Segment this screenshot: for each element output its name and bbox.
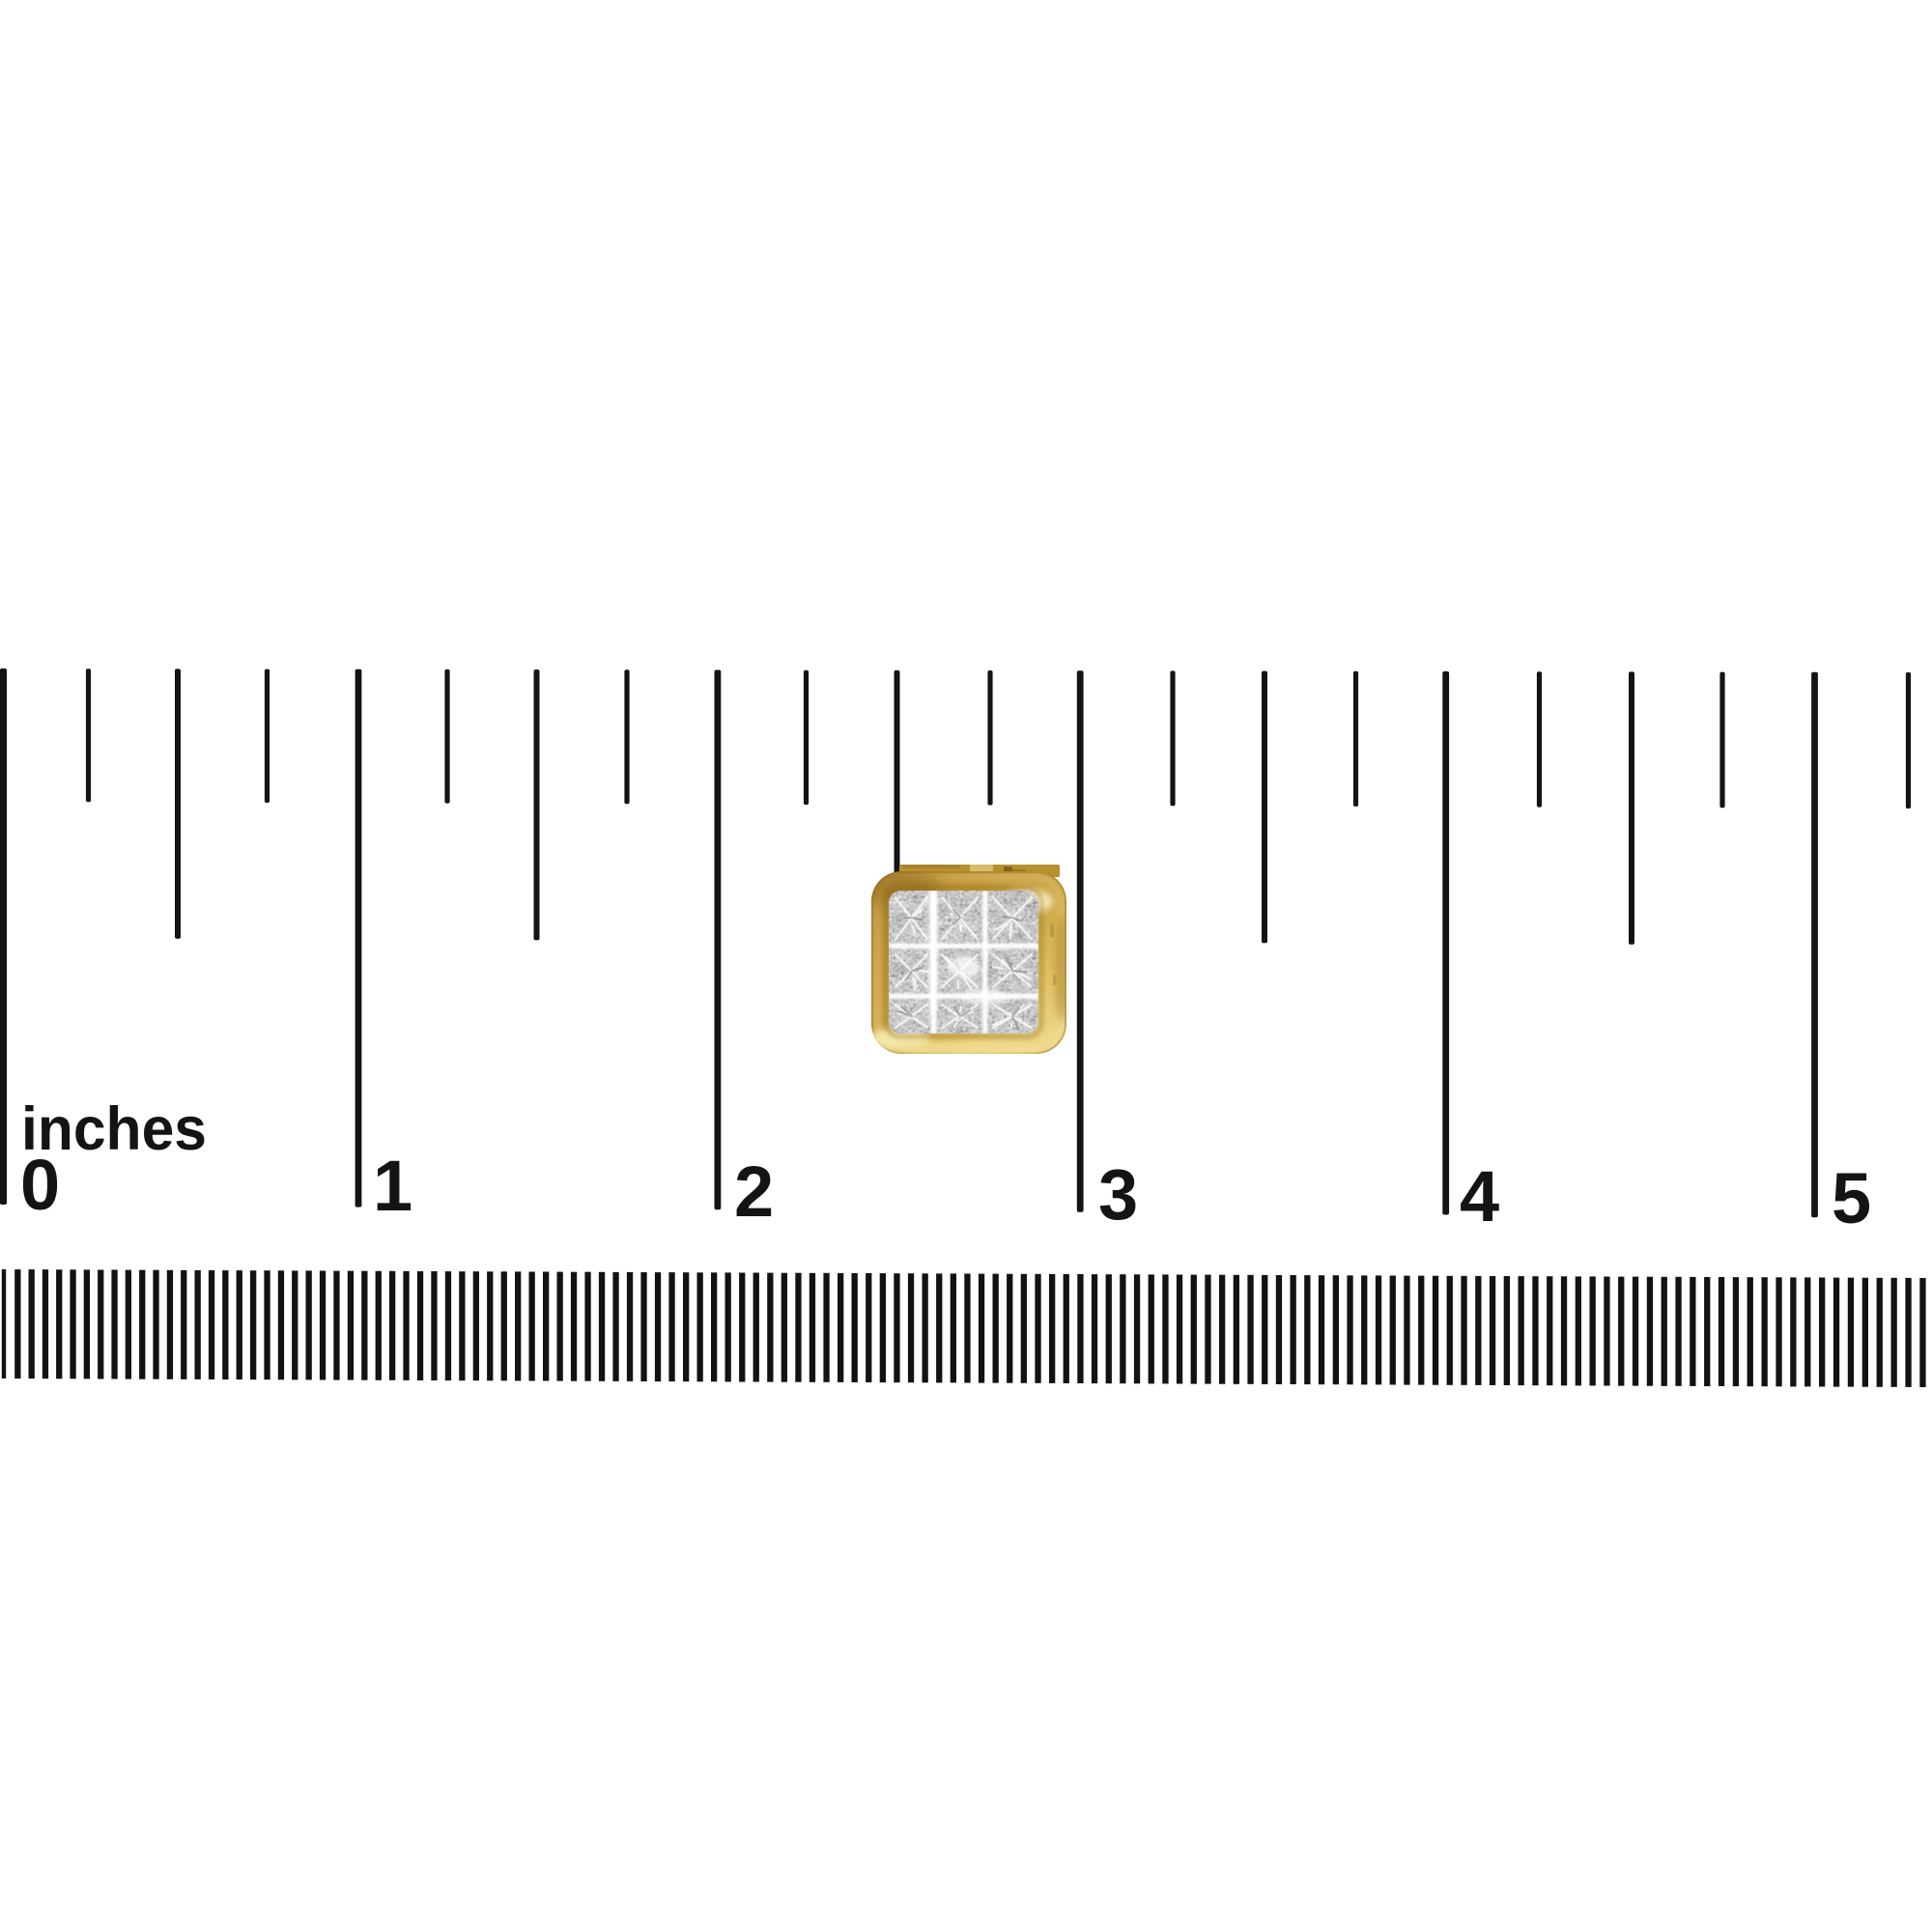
svg-text:5: 5 (1832, 1158, 1871, 1238)
svg-text:1: 1 (373, 1146, 412, 1226)
svg-text:4: 4 (1460, 1156, 1499, 1236)
svg-text:2: 2 (734, 1151, 774, 1232)
svg-text:inches: inches (21, 1095, 207, 1163)
svg-text:3: 3 (1098, 1154, 1138, 1235)
